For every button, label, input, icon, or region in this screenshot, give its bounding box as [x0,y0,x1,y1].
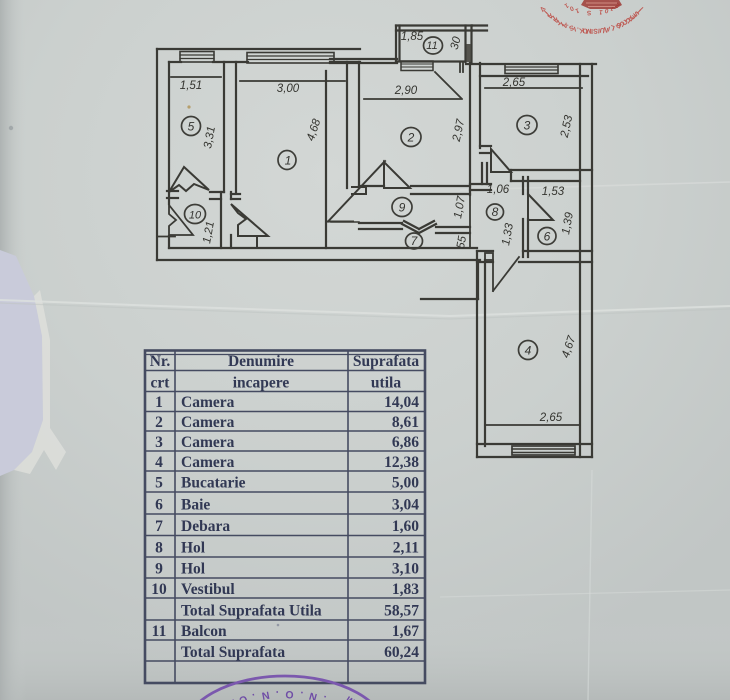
svg-text:1: 1 [155,394,163,411]
svg-text:9: 9 [399,201,406,215]
svg-text:Hol: Hol [181,540,206,557]
svg-text:4: 4 [525,344,532,358]
svg-text:3: 3 [524,119,531,133]
svg-text:3,04: 3,04 [392,497,419,514]
svg-text:Camera: Camera [181,454,235,471]
svg-text:incapere: incapere [233,375,290,392]
svg-text:3: 3 [155,434,163,451]
svg-text:2: 2 [155,414,163,431]
svg-text:3,00: 3,00 [277,83,300,95]
svg-text:2,65: 2,65 [502,77,526,89]
svg-text:9: 9 [155,561,163,578]
svg-text:1,67: 1,67 [392,623,419,640]
svg-text:S: S [593,27,598,34]
svg-text:3,10: 3,10 [392,561,419,578]
svg-text:Camera: Camera [181,414,235,431]
svg-text:4: 4 [155,454,163,471]
svg-text:6: 6 [155,497,163,514]
svg-text:Total Suprafata Utila: Total Suprafata Utila [181,603,322,620]
svg-text:2,90: 2,90 [394,85,418,97]
svg-text:Camera: Camera [181,434,235,451]
svg-text:crt: crt [151,375,171,392]
svg-text:1: 1 [285,154,292,168]
svg-text:I: I [591,27,593,34]
svg-text:5: 5 [155,475,163,492]
svg-text:14,04: 14,04 [384,394,419,411]
svg-text:Bucatarie: Bucatarie [181,475,246,492]
svg-text:Total Suprafata: Total Suprafata [181,644,285,661]
svg-text:O: O [285,688,294,700]
svg-text:10: 10 [151,581,167,598]
svg-text:2,65: 2,65 [539,412,563,424]
svg-text:1,51: 1,51 [180,80,202,92]
svg-text:10: 10 [189,210,202,222]
svg-text:1,83: 1,83 [392,581,419,598]
svg-text:Baie: Baie [181,497,210,514]
svg-text:8: 8 [155,540,163,557]
svg-text:58,57: 58,57 [384,603,419,620]
svg-text:2: 2 [407,131,415,145]
svg-text:1,53: 1,53 [542,186,565,198]
svg-text:Denumire: Denumire [228,353,294,370]
svg-text:Nr.: Nr. [150,353,171,370]
svg-text:utila: utila [371,375,401,392]
svg-text:2,11: 2,11 [393,540,419,557]
svg-text:12,38: 12,38 [384,454,419,471]
svg-text:11: 11 [426,40,437,52]
svg-text:5,00: 5,00 [392,475,419,492]
svg-text:6,86: 6,86 [392,434,419,451]
svg-text:6: 6 [544,230,551,244]
svg-text:Camera: Camera [181,394,235,411]
svg-text:M: M [585,27,591,34]
svg-text:1,85: 1,85 [401,31,424,43]
svg-text:Vestibul: Vestibul [181,581,235,598]
svg-text:Suprafata: Suprafata [353,353,420,370]
svg-text:5: 5 [188,120,195,134]
svg-text:Hol: Hol [181,561,206,578]
svg-text:1,60: 1,60 [392,518,419,535]
svg-text:8: 8 [492,205,499,219]
svg-text:7: 7 [155,518,163,535]
svg-text:11: 11 [152,623,167,640]
svg-text:1,06: 1,06 [487,184,510,196]
svg-text:Balcon: Balcon [181,623,227,640]
svg-text:Debara: Debara [181,518,230,535]
svg-text:8,61: 8,61 [392,414,419,431]
svg-text:60,24: 60,24 [384,644,419,661]
